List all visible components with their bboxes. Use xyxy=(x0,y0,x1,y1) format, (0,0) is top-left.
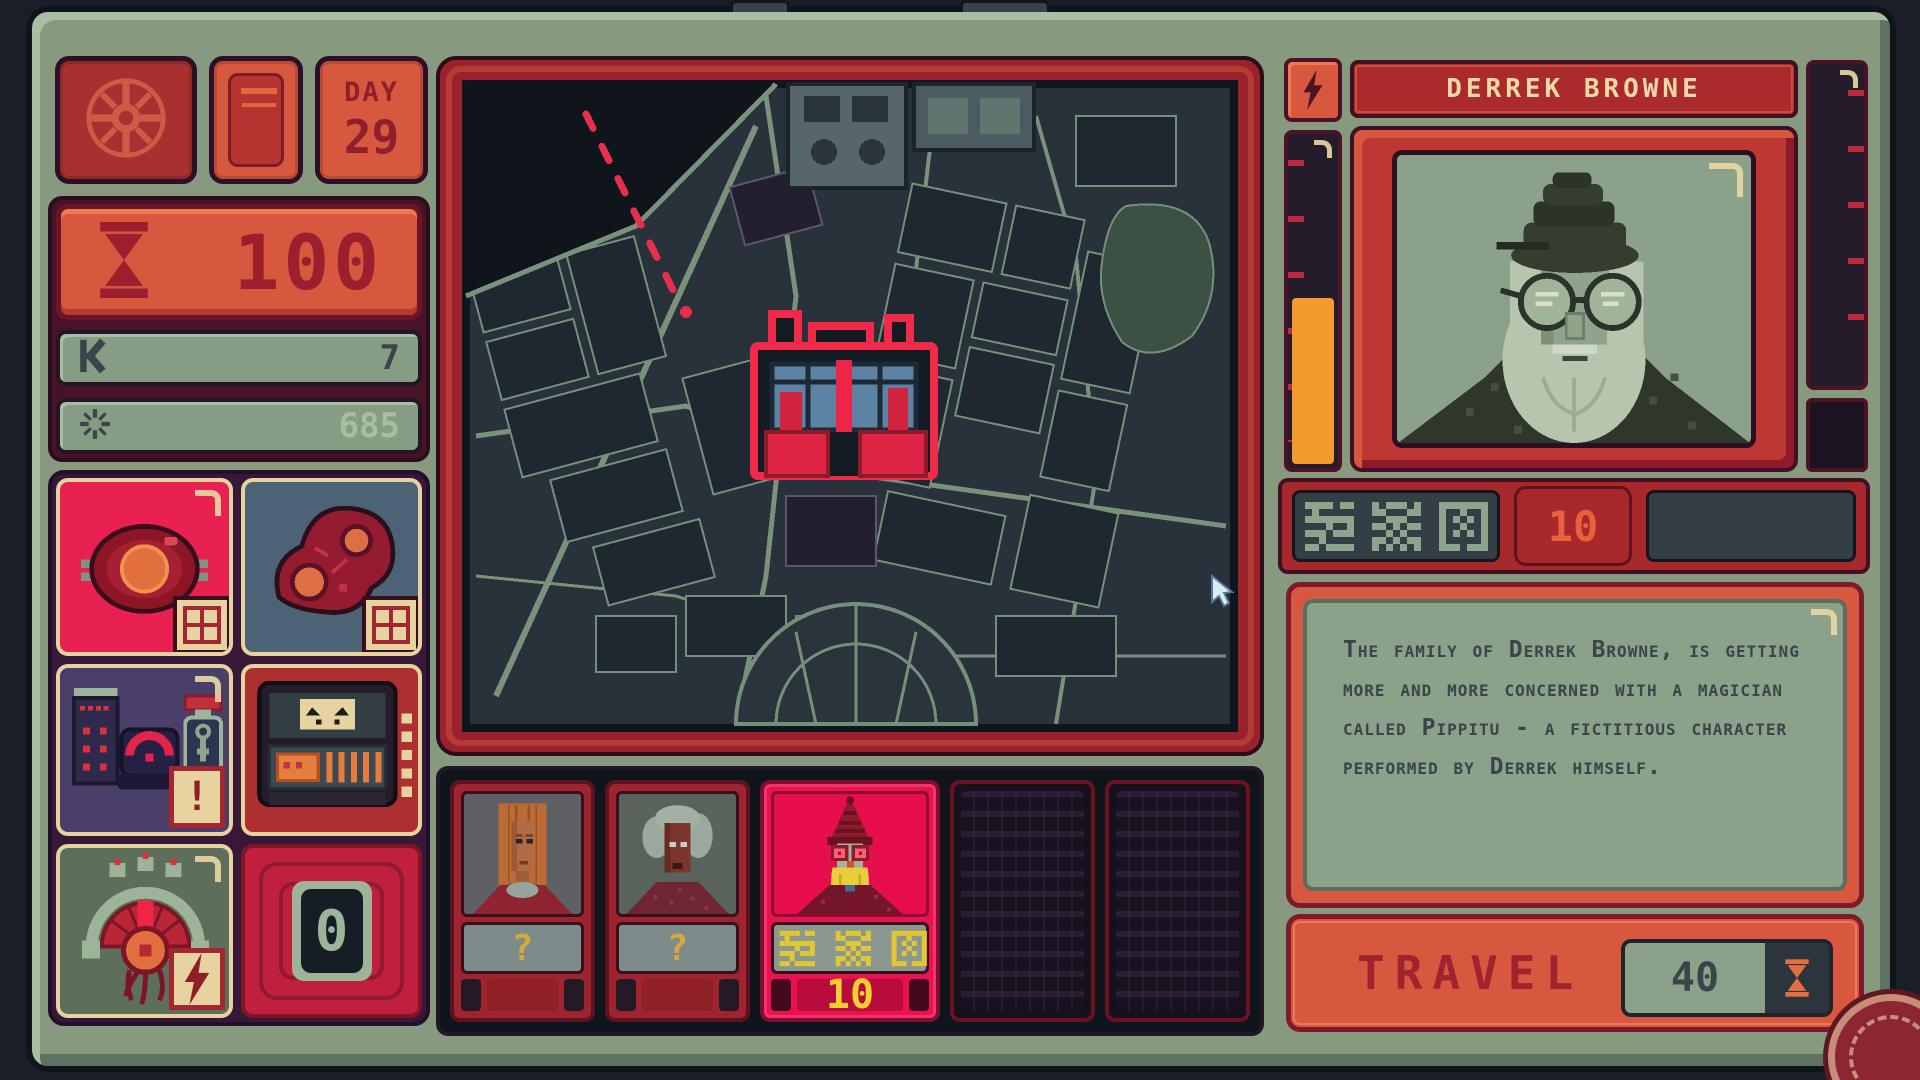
passenger-dock: ? ? xyxy=(436,766,1264,1036)
compass-button[interactable] xyxy=(55,56,197,184)
gauge-socket xyxy=(1806,398,1868,472)
destination-marker[interactable] xyxy=(754,314,934,476)
currency-value: 7 xyxy=(380,338,400,378)
empty-id-panel xyxy=(1646,490,1856,562)
passenger-plate: ? xyxy=(461,922,584,974)
journal-icon xyxy=(228,73,284,167)
corner-accent xyxy=(1314,140,1332,158)
alert-icon: ! xyxy=(169,766,225,828)
stamp-icon xyxy=(362,596,420,654)
item-fan-device[interactable] xyxy=(56,844,233,1018)
description-box: The family of Derrek Browne, is getting … xyxy=(1286,582,1864,908)
hourglass-icon xyxy=(95,222,153,302)
counter-value: 0 xyxy=(301,889,363,973)
travel-cost-pill: 40 xyxy=(1621,939,1833,1017)
travel-label: TRAVEL xyxy=(1357,946,1583,1000)
rune-barcode-icon xyxy=(1292,490,1500,562)
currency-icon xyxy=(78,337,106,379)
passenger-card-2[interactable]: ? xyxy=(605,780,750,1022)
profile-price: 10 xyxy=(1514,486,1632,566)
profile-portrait xyxy=(1392,150,1756,448)
passenger-portrait xyxy=(771,791,929,917)
journal-button[interactable] xyxy=(209,56,303,184)
light-bar: 685 xyxy=(56,398,422,454)
passenger-portrait xyxy=(461,791,584,917)
day-value: 29 xyxy=(344,110,399,164)
rune-barcode-icon xyxy=(771,922,929,974)
pipe-tab xyxy=(730,0,790,12)
counter-tile[interactable]: 0 xyxy=(241,844,422,1018)
secondary-gauge xyxy=(1806,60,1868,390)
game-screen: DAY 29 100 7 685 xyxy=(0,0,1920,1080)
empty-slot[interactable] xyxy=(950,780,1095,1022)
travel-cost: 40 xyxy=(1625,943,1765,1013)
city-map[interactable] xyxy=(436,56,1264,756)
compass-icon xyxy=(78,70,174,170)
lightning-badge xyxy=(169,948,225,1010)
time-value: 100 xyxy=(234,218,383,307)
stamp-icon xyxy=(173,596,231,654)
cassette-icon xyxy=(245,668,418,832)
day-counter: DAY 29 xyxy=(315,56,428,184)
gauge-fill xyxy=(1292,298,1334,464)
lightning-icon xyxy=(174,953,220,1005)
pipe-tab xyxy=(960,0,1050,12)
energy-indicator xyxy=(1284,58,1342,122)
hourglass-icon xyxy=(1765,943,1829,1013)
travel-button[interactable]: TRAVEL 40 xyxy=(1286,914,1864,1032)
empty-slot[interactable] xyxy=(1105,780,1250,1022)
item-creature[interactable] xyxy=(241,478,422,656)
item-cassette[interactable] xyxy=(241,664,422,836)
light-value: 685 xyxy=(339,406,400,446)
counter-display: 0 xyxy=(292,881,372,981)
corner-accent xyxy=(1840,70,1858,88)
passenger-plate: ? xyxy=(616,922,739,974)
description-text: The family of Derrek Browne, is getting … xyxy=(1303,599,1847,891)
passenger-card-selected[interactable]: 10 xyxy=(760,780,940,1022)
item-saucer[interactable] xyxy=(56,478,233,656)
sun-icon xyxy=(78,407,112,445)
currency-bar: 7 xyxy=(56,330,422,386)
item-machines[interactable]: ! xyxy=(56,664,233,836)
energy-gauge xyxy=(1284,130,1342,472)
time-remaining-panel: 100 xyxy=(56,204,422,320)
lightning-icon xyxy=(1300,70,1326,110)
passenger-card-1[interactable]: ? xyxy=(450,780,595,1022)
profile-name: DERREK BROWNE xyxy=(1350,60,1798,118)
day-label: DAY xyxy=(344,77,399,108)
passenger-price: 10 xyxy=(797,979,903,1011)
passenger-portrait xyxy=(616,791,739,917)
